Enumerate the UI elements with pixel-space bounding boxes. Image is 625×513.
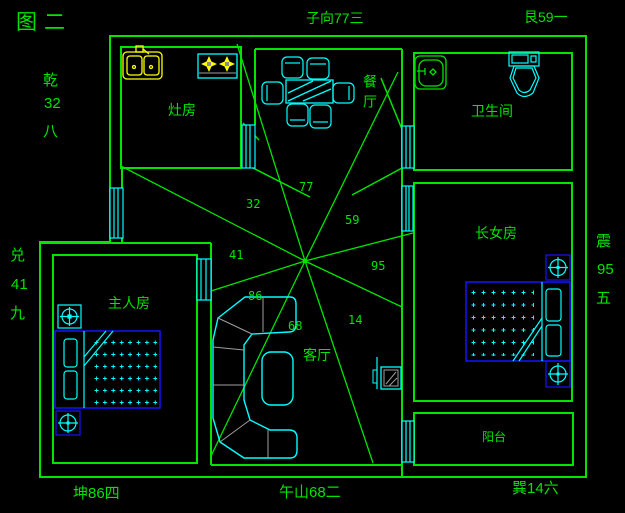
compass-center-point: [303, 259, 307, 263]
master-bed: [55, 331, 160, 408]
label-dui-number: 41: [11, 277, 28, 292]
floorplan-drawing: [0, 0, 625, 513]
ceiling-lamp-icon: [56, 411, 80, 435]
star-number-east: 95: [371, 260, 385, 272]
window-icon: [402, 186, 413, 231]
star-number-southeast: 14: [348, 314, 362, 326]
floorplan-canvas: 图二 子向77三 艮59一 乾 32 八 兑 41 九 震 95 五 坤86四 …: [0, 0, 625, 513]
room-label-master-bedroom: 主人房: [108, 296, 150, 310]
window-icon: [197, 259, 211, 300]
figure-title: 图二: [16, 12, 72, 33]
dining-splay-walls: [253, 168, 402, 197]
ceiling-lamp-icon: [546, 361, 570, 387]
pillow: [64, 371, 77, 399]
chair-icon: [307, 58, 329, 79]
pillow: [546, 325, 561, 356]
pillow: [64, 339, 77, 367]
dining-chairs: [262, 57, 354, 128]
chair-icon: [282, 57, 303, 78]
star-number-north: 77: [299, 181, 313, 193]
washbasin-icon: [415, 56, 446, 89]
window-icon: [402, 126, 414, 168]
label-dui-trigram: 兑: [10, 248, 25, 263]
ceiling-lamp-icon: [546, 255, 570, 280]
ceiling-lamp-icon: [58, 305, 81, 328]
room-label-living-room: 客厅: [303, 348, 331, 362]
window-icon: [110, 188, 123, 238]
kitchen-sink-icon: [123, 46, 162, 79]
label-qian-trigram: 乾: [43, 73, 58, 88]
window-icon: [402, 421, 414, 462]
label-dui-numeral: 九: [10, 306, 25, 321]
chair-icon: [287, 104, 308, 126]
room-label-dining: 餐厅: [363, 74, 377, 120]
tv-icon: [373, 357, 401, 389]
label-zhen-trigram: 震: [596, 234, 611, 249]
toilet-icon: [509, 52, 539, 97]
blanket-pattern: [93, 339, 157, 405]
dining-table: [286, 80, 333, 103]
label-zhen-numeral: 五: [596, 291, 611, 306]
star-number-northeast: 59: [345, 214, 359, 226]
room-label-bathroom: 卫生间: [471, 104, 513, 118]
daughter-bed: [466, 282, 570, 361]
chair-icon: [310, 105, 331, 128]
room-label-balcony: 阳台: [482, 431, 506, 443]
room-label-daughter-bedroom: 长女房: [475, 226, 517, 240]
label-gen-direction: 艮59一: [524, 10, 568, 24]
chair-icon: [333, 83, 354, 103]
chair-icon: [262, 82, 283, 104]
sofa: [213, 297, 297, 458]
star-number-southwest: 86: [248, 290, 262, 302]
label-qian-numeral: 八: [43, 124, 58, 139]
star-number-west: 41: [229, 249, 243, 261]
coffee-table: [262, 352, 293, 405]
star-number-northwest: 32: [246, 198, 260, 210]
room-label-kitchen: 灶房: [168, 103, 196, 117]
label-qian-number: 32: [44, 96, 61, 111]
label-sitting-direction: 午山68二: [279, 485, 341, 500]
label-xun-direction: 巽14六: [512, 481, 559, 496]
star-number-south: 68: [288, 320, 302, 332]
window-icon: [242, 125, 255, 168]
label-facing-direction: 子向77三: [306, 11, 364, 25]
pillow: [546, 289, 561, 321]
blanket-pattern: [470, 289, 534, 356]
label-kun-direction: 坤86四: [73, 486, 120, 501]
label-zhen-number: 95: [597, 262, 614, 277]
stove-icon: [198, 54, 237, 78]
